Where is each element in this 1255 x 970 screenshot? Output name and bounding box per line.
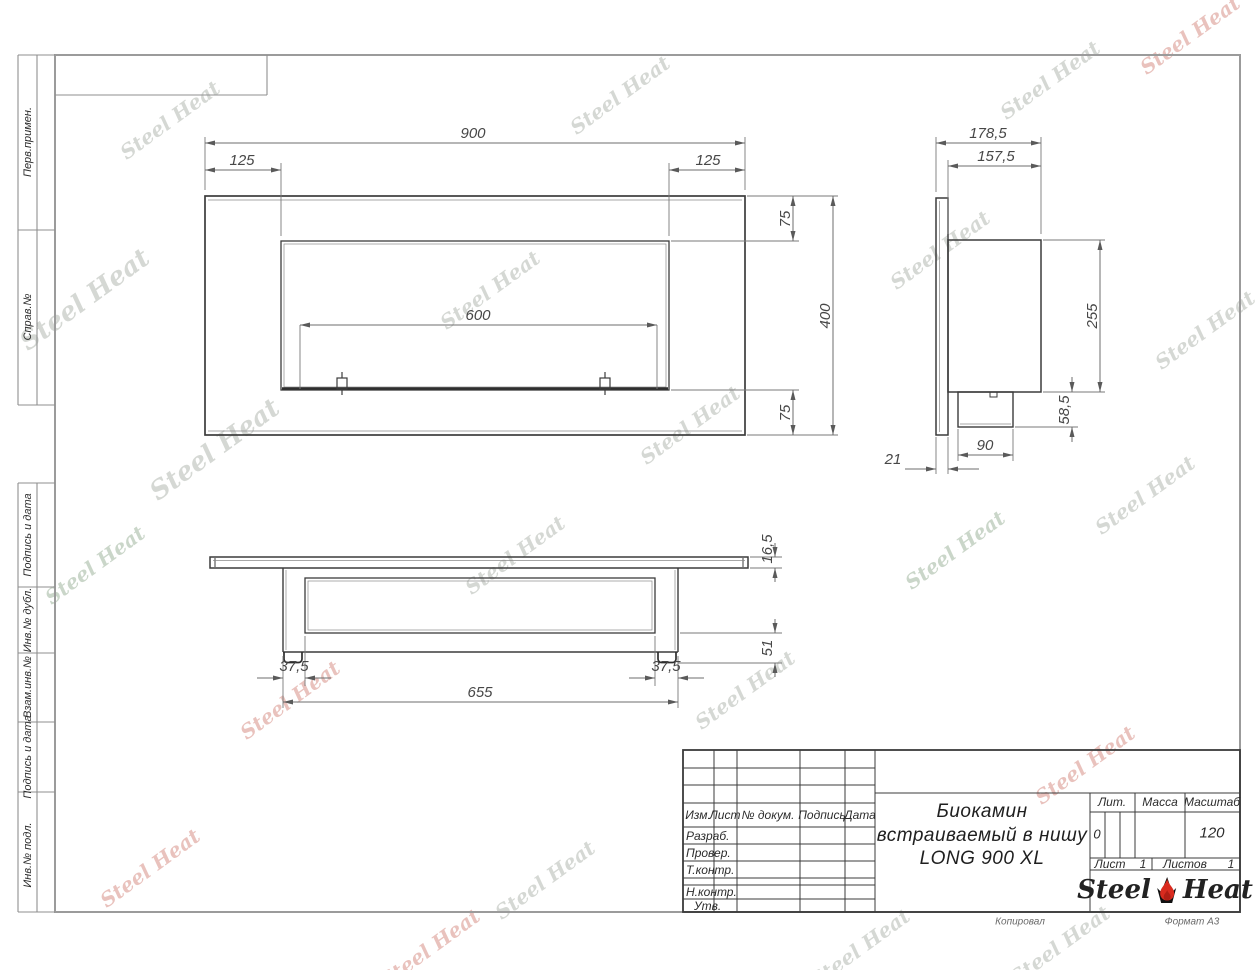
dim-front-overall-width: 900 xyxy=(205,125,745,190)
tb-row-developed: Разраб. xyxy=(686,829,729,843)
tb-col-doc: № докум. xyxy=(742,808,795,822)
dim-label: 600 xyxy=(465,307,491,324)
dim-label: 255 xyxy=(1084,303,1101,330)
strip-label-podpis-data-1: Подпись и дата xyxy=(22,493,34,576)
dim-bottom-foot-offset-right: 37,5 xyxy=(629,636,704,708)
dim-label: 21 xyxy=(884,451,902,468)
tb-mass-label: Масса xyxy=(1142,795,1177,809)
dim-label: 178,5 xyxy=(969,125,1007,142)
tb-sheets-label: Листов xyxy=(1163,857,1207,871)
dim-side-body-depth: 157,5 xyxy=(948,148,1041,234)
dim-front-left-inset: 125 xyxy=(205,152,281,236)
tb-lit-label: Лит. xyxy=(1098,795,1126,809)
dim-label: 37,5 xyxy=(651,658,681,675)
dim-bottom-plate-thickness: 16,5 xyxy=(750,534,782,582)
tb-col-date: Дата xyxy=(844,808,876,822)
bottom-view-dimensions: 16,5 51 37,5 37,5 xyxy=(257,534,782,708)
side-view-dimensions: 178,5 157,5 255 58,5 xyxy=(884,125,1105,474)
dim-label: 157,5 xyxy=(977,148,1015,165)
brand-word-steel: Steel xyxy=(1077,875,1151,905)
strip-label-sprav-no: Справ.№ xyxy=(22,294,34,341)
dim-label: 75 xyxy=(777,210,794,227)
dim-label: 900 xyxy=(460,125,486,142)
strip-label-vzam-inv: Взам.инв.№ xyxy=(22,656,34,718)
bottom-view xyxy=(210,557,748,663)
strip-label-podpis-data-2: Подпись и дата xyxy=(22,715,34,798)
tb-lit-value: 0 xyxy=(1093,827,1100,842)
side-view xyxy=(936,198,1041,435)
tb-row-ncontrol: Н.контр. xyxy=(686,885,737,899)
footer-copied-label: Копировал xyxy=(995,917,1045,928)
dim-front-right-inset: 125 xyxy=(669,152,745,236)
flame-icon xyxy=(1155,876,1179,904)
brand-word-heat: Heat xyxy=(1183,875,1253,905)
strip-label-inv-podl: Инв.№ подл. xyxy=(22,822,34,887)
dim-label: 37,5 xyxy=(279,658,309,675)
tb-sheets-value: 1 xyxy=(1228,857,1235,871)
tb-col-sign: Подпись xyxy=(798,808,846,822)
dim-label: 400 xyxy=(817,303,834,329)
burner-tab xyxy=(337,372,347,395)
dim-label: 58,5 xyxy=(1056,395,1073,425)
footer-format-label: Формат А3 xyxy=(1165,917,1220,928)
drawing-sheet: Steel Heat Steel Heat Steel Heat Steel H… xyxy=(0,0,1255,970)
tb-scale-label: Масштаб xyxy=(1184,795,1240,809)
dim-label: 51 xyxy=(759,640,776,657)
dim-front-top-inset: 75 xyxy=(671,196,838,241)
dim-label: 655 xyxy=(467,684,493,701)
strip-label-inv-dubl: Инв.№ дубл. xyxy=(22,588,34,653)
product-title-line3: LONG 900 XL xyxy=(920,848,1045,870)
sheet-frame xyxy=(55,55,1240,912)
product-title-line2: встраиваемый в нишу xyxy=(877,825,1088,847)
dim-side-body-height: 255 xyxy=(1043,240,1105,392)
dim-label: 90 xyxy=(977,437,994,454)
dim-bottom-lower-height: 51 xyxy=(678,619,782,677)
tb-sheet-label: Лист xyxy=(1095,857,1126,871)
tb-row-tcontrol: Т.контр. xyxy=(686,863,734,877)
dim-front-burner-length: 600 xyxy=(300,307,657,389)
dim-side-overall-depth: 178,5 xyxy=(936,125,1041,234)
dim-label: 16,5 xyxy=(759,534,776,564)
brand-logo: Steel Heat xyxy=(1077,875,1253,905)
tb-col-list: Лист xyxy=(710,808,741,822)
dim-front-bottom-inset: 75 xyxy=(671,390,799,435)
dim-side-tank-width: 90 xyxy=(958,429,1013,461)
burner-tab xyxy=(600,372,610,395)
tb-row-approved: Утв. xyxy=(694,899,721,913)
dim-label: 125 xyxy=(695,152,721,169)
tb-scale-value: 120 xyxy=(1199,825,1224,842)
tb-row-checked: Провер. xyxy=(686,846,731,860)
dim-side-tank-height: 58,5 xyxy=(1015,377,1078,442)
strip-label-perv-primen: Перв.примен. xyxy=(22,107,34,177)
tb-sheet-value: 1 xyxy=(1140,857,1147,871)
dim-bottom-body-length: 655 xyxy=(283,684,678,705)
dim-bottom-foot-offset-left: 37,5 xyxy=(257,636,331,708)
dim-label: 125 xyxy=(229,152,255,169)
tb-col-izm: Изм. xyxy=(685,808,711,822)
dim-label: 75 xyxy=(777,404,794,421)
product-title-line1: Биокамин xyxy=(936,801,1027,823)
